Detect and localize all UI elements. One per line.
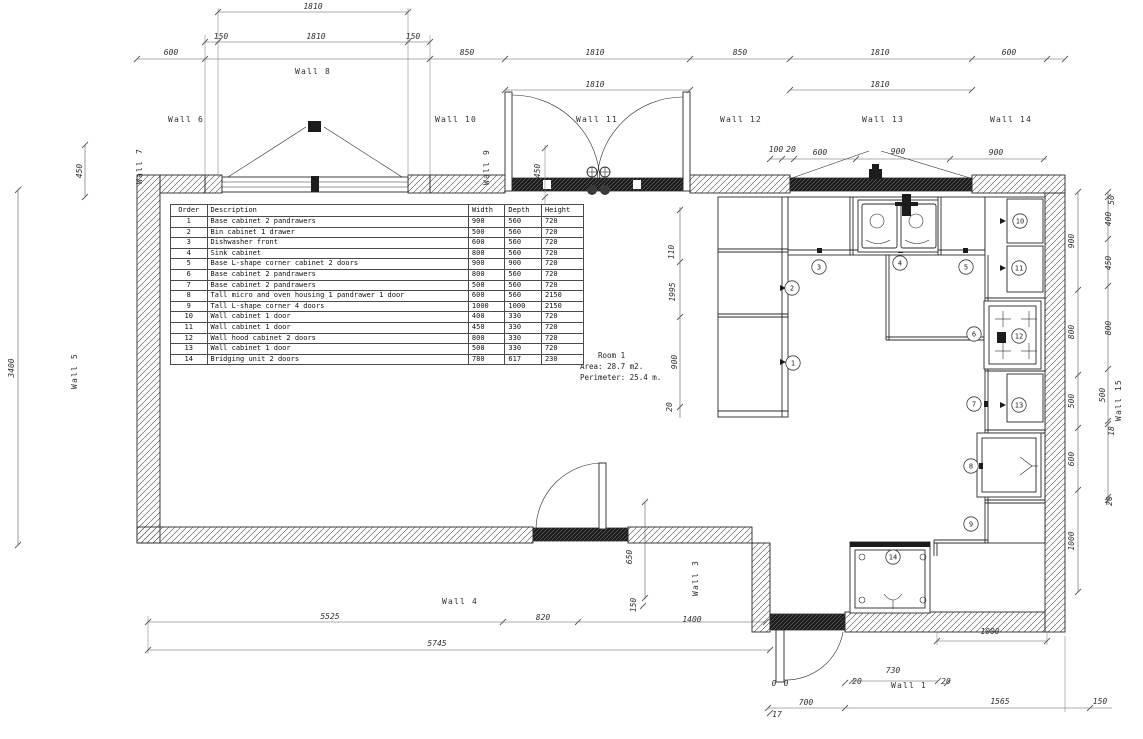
dimension-label: 20 [665, 402, 674, 412]
dimension-label: 18 [1107, 426, 1116, 436]
wall-left [137, 175, 160, 543]
table-cell-description: Bridging unit 2 doors [207, 354, 468, 365]
balloon-number: 3 [817, 263, 821, 271]
wall-cabinet [1007, 374, 1043, 422]
table-cell-description: Sink cabinet [207, 248, 468, 259]
table-column-header: Width [468, 205, 505, 217]
table-row: 14Bridging unit 2 doors780617230 [171, 354, 584, 365]
dimension-label: 850 [460, 48, 475, 57]
table-cell-width: 1000 [468, 301, 505, 312]
table-cell-width: 400 [468, 312, 505, 323]
table-header-row: OrderDescriptionWidthDepthHeight [171, 205, 584, 217]
dimension-label: 150 [1093, 697, 1108, 706]
table-cell-width: 900 [468, 217, 505, 228]
table-cell-width: 500 [468, 344, 505, 355]
door-sill [533, 528, 628, 541]
balloon-number: 4 [898, 259, 902, 267]
dimension-label: 20 [786, 145, 796, 154]
table-cell-depth: 617 [505, 354, 542, 365]
table-cell-height: 720 [541, 333, 583, 344]
door-swing-arc [512, 95, 600, 183]
table-cell-depth: 560 [505, 227, 542, 238]
room-info: Room 1 Area: 28.7 m2. Perimeter: 25.4 m. [580, 351, 661, 382]
balloon-number: 5 [964, 263, 968, 271]
dimension-label: 20 [1105, 496, 1114, 506]
dimension-label: 900 [891, 147, 906, 156]
table-cell-depth: 900 [505, 259, 542, 270]
floor-plan-canvas: 1810150181015060085018108501810600181018… [0, 0, 1143, 739]
table-row: 6Base cabinet 2 pandrawers800560720 [171, 269, 584, 280]
dimension-label: 1810 [870, 80, 889, 89]
door-leaf [776, 630, 784, 682]
table-cell-depth: 560 [505, 217, 542, 228]
window-mullion [311, 176, 319, 192]
wall-bottom-left [137, 527, 533, 543]
dimension-label: 1810 [870, 48, 889, 57]
balloon-number: 10 [1016, 217, 1024, 225]
table-cell-description: Bin cabinet 1 drawer [207, 227, 468, 238]
tall-cabinet-column [718, 197, 788, 417]
dimension-label: 900 [989, 148, 1004, 157]
table-cell-order: 7 [171, 280, 208, 291]
table-cell-width: 450 [468, 322, 505, 333]
table-cell-order: 13 [171, 344, 208, 355]
wall-label: Wall 1 [891, 681, 927, 690]
table-cell-depth: 330 [505, 333, 542, 344]
table-cell-order: 10 [171, 312, 208, 323]
table-row: 10Wall cabinet 1 door400330720 [171, 312, 584, 323]
wall-label: Wall 3 [691, 560, 700, 596]
table-row: 13Wall cabinet 1 door500330720 [171, 344, 584, 355]
table-cell-width: 800 [468, 248, 505, 259]
table-cell-depth: 560 [505, 248, 542, 259]
wall-label: Wall 7 [135, 148, 144, 184]
casement-pivot [308, 121, 321, 132]
dimension-label: 1000 [980, 627, 999, 636]
room-area: Area: 28.7 m2. [580, 362, 643, 371]
window-jamb [205, 175, 222, 193]
door-frame [505, 92, 512, 191]
casement-line [792, 151, 869, 178]
dimension-label: 1810 [585, 48, 604, 57]
table-column-header: Order [171, 205, 208, 217]
balloon-number: 2 [790, 284, 794, 292]
dimension-label: 1810 [306, 32, 325, 41]
dimension-label: 20 [941, 677, 951, 686]
table-column-header: Description [207, 205, 468, 217]
wall-label: Wall 12 [720, 115, 762, 124]
table-cell-height: 720 [541, 322, 583, 333]
cooktop-knob [997, 332, 1006, 343]
dimension-label: 150 [406, 32, 421, 41]
balloon-number: 7 [972, 400, 976, 408]
table-row: 7Base cabinet 2 pandrawers500560720 [171, 280, 584, 291]
wall-label: Wall 10 [435, 115, 477, 124]
table-cell-width: 800 [468, 269, 505, 280]
door-sill [770, 614, 845, 630]
dimension-label: 500 [1067, 394, 1076, 409]
dimension-label: 850 [733, 48, 748, 57]
dimension-label: 700 [799, 698, 814, 707]
dimension-label: 5745 [427, 639, 446, 648]
table-cell-order: 11 [171, 322, 208, 333]
table-cell-order: 6 [171, 269, 208, 280]
table-row: 4Sink cabinet800560720 [171, 248, 584, 259]
table-column-header: Depth [505, 205, 542, 217]
table-row: 3Dishwasher front600560720 [171, 238, 584, 249]
door-swing-arc [784, 632, 843, 680]
table-cell-order: 3 [171, 238, 208, 249]
dimension-label: 900 [670, 355, 679, 370]
wall-label: Wall 11 [576, 115, 618, 124]
table-cell-description: Base cabinet 2 pandrawers [207, 280, 468, 291]
table-cell-description: Base L-shape corner cabinet 2 doors [207, 259, 468, 270]
table-cell-description: Tall L-shape corner 4 doors [207, 301, 468, 312]
table-cell-width: 600 [468, 238, 505, 249]
wall-bottom-left [628, 527, 752, 543]
wall-right [1045, 193, 1065, 632]
dimension-label: 5525 [320, 612, 339, 621]
cabinet-schedule-table: OrderDescriptionWidthDepthHeight 1Base c… [170, 204, 584, 365]
table-cell-depth: 1000 [505, 301, 542, 312]
dimension-label: 0 [772, 679, 777, 688]
table-column-header: Height [541, 205, 583, 217]
wall-top-segment [430, 175, 505, 193]
table-cell-width: 900 [468, 259, 505, 270]
balloon-number: 13 [1015, 401, 1023, 409]
dimension-label: 1565 [990, 697, 1009, 706]
dimension-label: 600 [164, 48, 179, 57]
table-cell-width: 780 [468, 354, 505, 365]
table-cell-description: Tall micro and oven housing 1 pandrawer … [207, 291, 468, 302]
table-cell-height: 720 [541, 217, 583, 228]
table-cell-height: 720 [541, 312, 583, 323]
balloon-number: 12 [1015, 332, 1023, 340]
dimension-label: 600 [1002, 48, 1017, 57]
balloon-number: 1 [791, 359, 795, 367]
dimension-label: 900 [1067, 234, 1076, 249]
wall-label: Wall 13 [862, 115, 904, 124]
dimension-label: 1810 [303, 2, 322, 11]
dimension-label: 650 [625, 550, 634, 565]
dimension-label: 450 [75, 164, 84, 179]
table-cell-depth: 560 [505, 291, 542, 302]
dimension-label: 400 [1104, 212, 1113, 227]
table-cell-description: Wall cabinet 1 door [207, 322, 468, 333]
dimension-label: 3400 [7, 358, 16, 378]
balloon-number: 8 [969, 462, 973, 470]
dimension-tick [842, 680, 848, 686]
table-cell-order: 12 [171, 333, 208, 344]
table-cell-width: 600 [468, 291, 505, 302]
table-cell-height: 720 [541, 248, 583, 259]
dimension-label: 1400 [682, 615, 701, 624]
dimension-label: 110 [667, 245, 676, 260]
doors [533, 463, 845, 682]
table-cell-depth: 560 [505, 280, 542, 291]
dimension-label: 800 [1067, 325, 1076, 340]
window-sill [790, 178, 972, 191]
table-cell-order: 8 [171, 291, 208, 302]
wall-step [752, 543, 770, 632]
wall-top-segment [690, 175, 790, 193]
table-cell-width: 500 [468, 280, 505, 291]
dimension-label: 150 [214, 32, 229, 41]
table-cell-description: Wall cabinet 1 door [207, 344, 468, 355]
dimension-label: 820 [536, 613, 551, 622]
balloon-number: 14 [889, 553, 897, 561]
window-jamb [408, 175, 430, 193]
table-cell-height: 230 [541, 354, 583, 365]
table-cell-description: Base cabinet 2 pandrawers [207, 217, 468, 228]
table-row: 12Wall hood cabinet 2 doors800330720 [171, 333, 584, 344]
casement-line [324, 127, 402, 177]
dimension-label: 20 [852, 677, 862, 686]
oven-housing [977, 433, 1041, 497]
table-row: 9Tall L-shape corner 4 doors100010002150 [171, 301, 584, 312]
table-row: 5Base L-shape corner cabinet 2 doors9009… [171, 259, 584, 270]
door-leaf [599, 463, 606, 529]
door-frame [683, 92, 690, 191]
wall-top-segment [972, 175, 1065, 193]
table-cell-order: 4 [171, 248, 208, 259]
table-cell-description: Base cabinet 2 pandrawers [207, 269, 468, 280]
dimension-label: 730 [886, 666, 901, 675]
table-cell-order: 2 [171, 227, 208, 238]
dimension-label: 450 [533, 164, 542, 179]
room-perimeter: Perimeter: 25.4 m. [580, 373, 661, 382]
dimension-label: 1000 [1067, 531, 1076, 550]
dimension-label: 1810 [585, 80, 604, 89]
table-cell-height: 2150 [541, 301, 583, 312]
dimension-tick [640, 603, 646, 609]
table-cell-order: 5 [171, 259, 208, 270]
dimension-label: 1995 [668, 282, 677, 301]
dimension-label: 0 [784, 679, 789, 688]
table-cell-depth: 560 [505, 269, 542, 280]
wall-label: Wall 4 [442, 597, 478, 606]
table-cell-depth: 330 [505, 322, 542, 333]
dimension-label: 100 [769, 145, 784, 154]
table-cell-order: 1 [171, 217, 208, 228]
table-cell-depth: 330 [505, 344, 542, 355]
table-cell-description: Wall cabinet 1 door [207, 312, 468, 323]
table-row: 11Wall cabinet 1 door450330720 [171, 322, 584, 333]
dimension-label: 800 [1104, 321, 1113, 336]
table-cell-depth: 560 [505, 238, 542, 249]
window-sill [512, 178, 683, 191]
table-cell-description: Wall hood cabinet 2 doors [207, 333, 468, 344]
wall-label: Wall 6 [168, 115, 204, 124]
table-row: 1Base cabinet 2 pandrawers900560720 [171, 217, 584, 228]
table-cell-height: 720 [541, 280, 583, 291]
table-cell-height: 720 [541, 259, 583, 270]
wall-label: Wall 14 [990, 115, 1032, 124]
room-name: Room 1 [598, 351, 625, 360]
table-cell-height: 720 [541, 344, 583, 355]
dimension-label: 450 [1104, 256, 1113, 271]
wall-bottom-right [845, 612, 1045, 632]
sink [858, 194, 938, 252]
dimension-label: 600 [1067, 452, 1076, 467]
door-swing-arc [536, 463, 603, 529]
table-cell-width: 500 [468, 227, 505, 238]
dimension-label: 150 [629, 598, 638, 613]
balloon-number: 6 [972, 330, 976, 338]
table-cell-height: 720 [541, 238, 583, 249]
wall-top-segment [160, 175, 205, 193]
table-cell-order: 9 [171, 301, 208, 312]
table-cell-height: 720 [541, 269, 583, 280]
cabinet-table-header: OrderDescriptionWidthDepthHeight [171, 205, 584, 217]
corner-cabinet-lines [934, 540, 988, 556]
dimension-label: 600 [813, 148, 828, 157]
table-cell-height: 2150 [541, 291, 583, 302]
table-cell-height: 720 [541, 227, 583, 238]
table-cell-depth: 330 [505, 312, 542, 323]
floor-plan-drawing: 1810150181015060085018108501810600181018… [0, 0, 1143, 739]
outlet-symbol [869, 169, 882, 179]
wall-label: Wall 8 [295, 67, 331, 76]
wall-label: Wall 5 [70, 353, 79, 389]
table-cell-width: 800 [468, 333, 505, 344]
casement-line [228, 127, 306, 177]
windows [222, 92, 972, 205]
table-row: 2Bin cabinet 1 drawer500560720 [171, 227, 584, 238]
balloon-number: 11 [1015, 264, 1023, 272]
dimension-label: 500 [1098, 388, 1107, 403]
cabinet-table-body: 1Base cabinet 2 pandrawers9005607202Bin … [171, 217, 584, 365]
table-row: 8Tall micro and oven housing 1 pandrawer… [171, 291, 584, 302]
dimension-label: 17 [772, 710, 782, 719]
table-cell-description: Dishwasher front [207, 238, 468, 249]
wall-label: Wall 15 [1114, 379, 1123, 421]
wall-label: Wall 9 [482, 149, 491, 185]
table-cell-order: 14 [171, 354, 208, 365]
balloon-number: 9 [969, 520, 973, 528]
